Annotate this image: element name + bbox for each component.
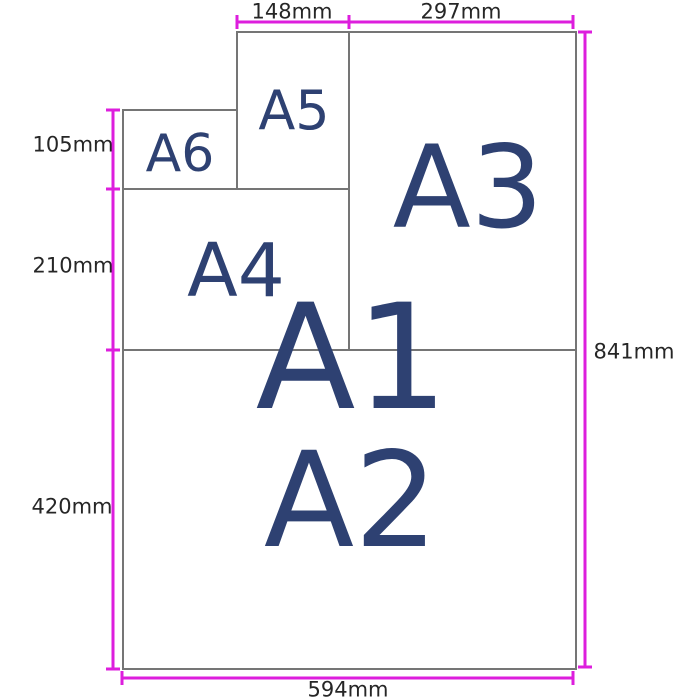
dimension-label-297mm: 297mm	[421, 2, 502, 23]
dimension-label-841mm: 841mm	[594, 342, 675, 363]
dimension-label-148mm: 148mm	[252, 2, 333, 23]
paper-label-a5: A5	[258, 84, 329, 138]
paper-label-a4: A4	[187, 234, 285, 308]
dimension-label-420mm: 420mm	[32, 497, 113, 518]
paper-sizes-diagram: A1 A2 A3 A4 A5 A6 148mm 297mm 105mm 210m…	[0, 0, 700, 700]
dimension-label-105mm: 105mm	[33, 135, 114, 156]
paper-label-a6: A6	[146, 128, 215, 180]
paper-label-a2: A2	[264, 435, 438, 567]
dimension-label-210mm: 210mm	[33, 256, 114, 277]
paper-label-a3: A3	[393, 131, 544, 245]
dimension-label-594mm: 594mm	[308, 680, 389, 700]
